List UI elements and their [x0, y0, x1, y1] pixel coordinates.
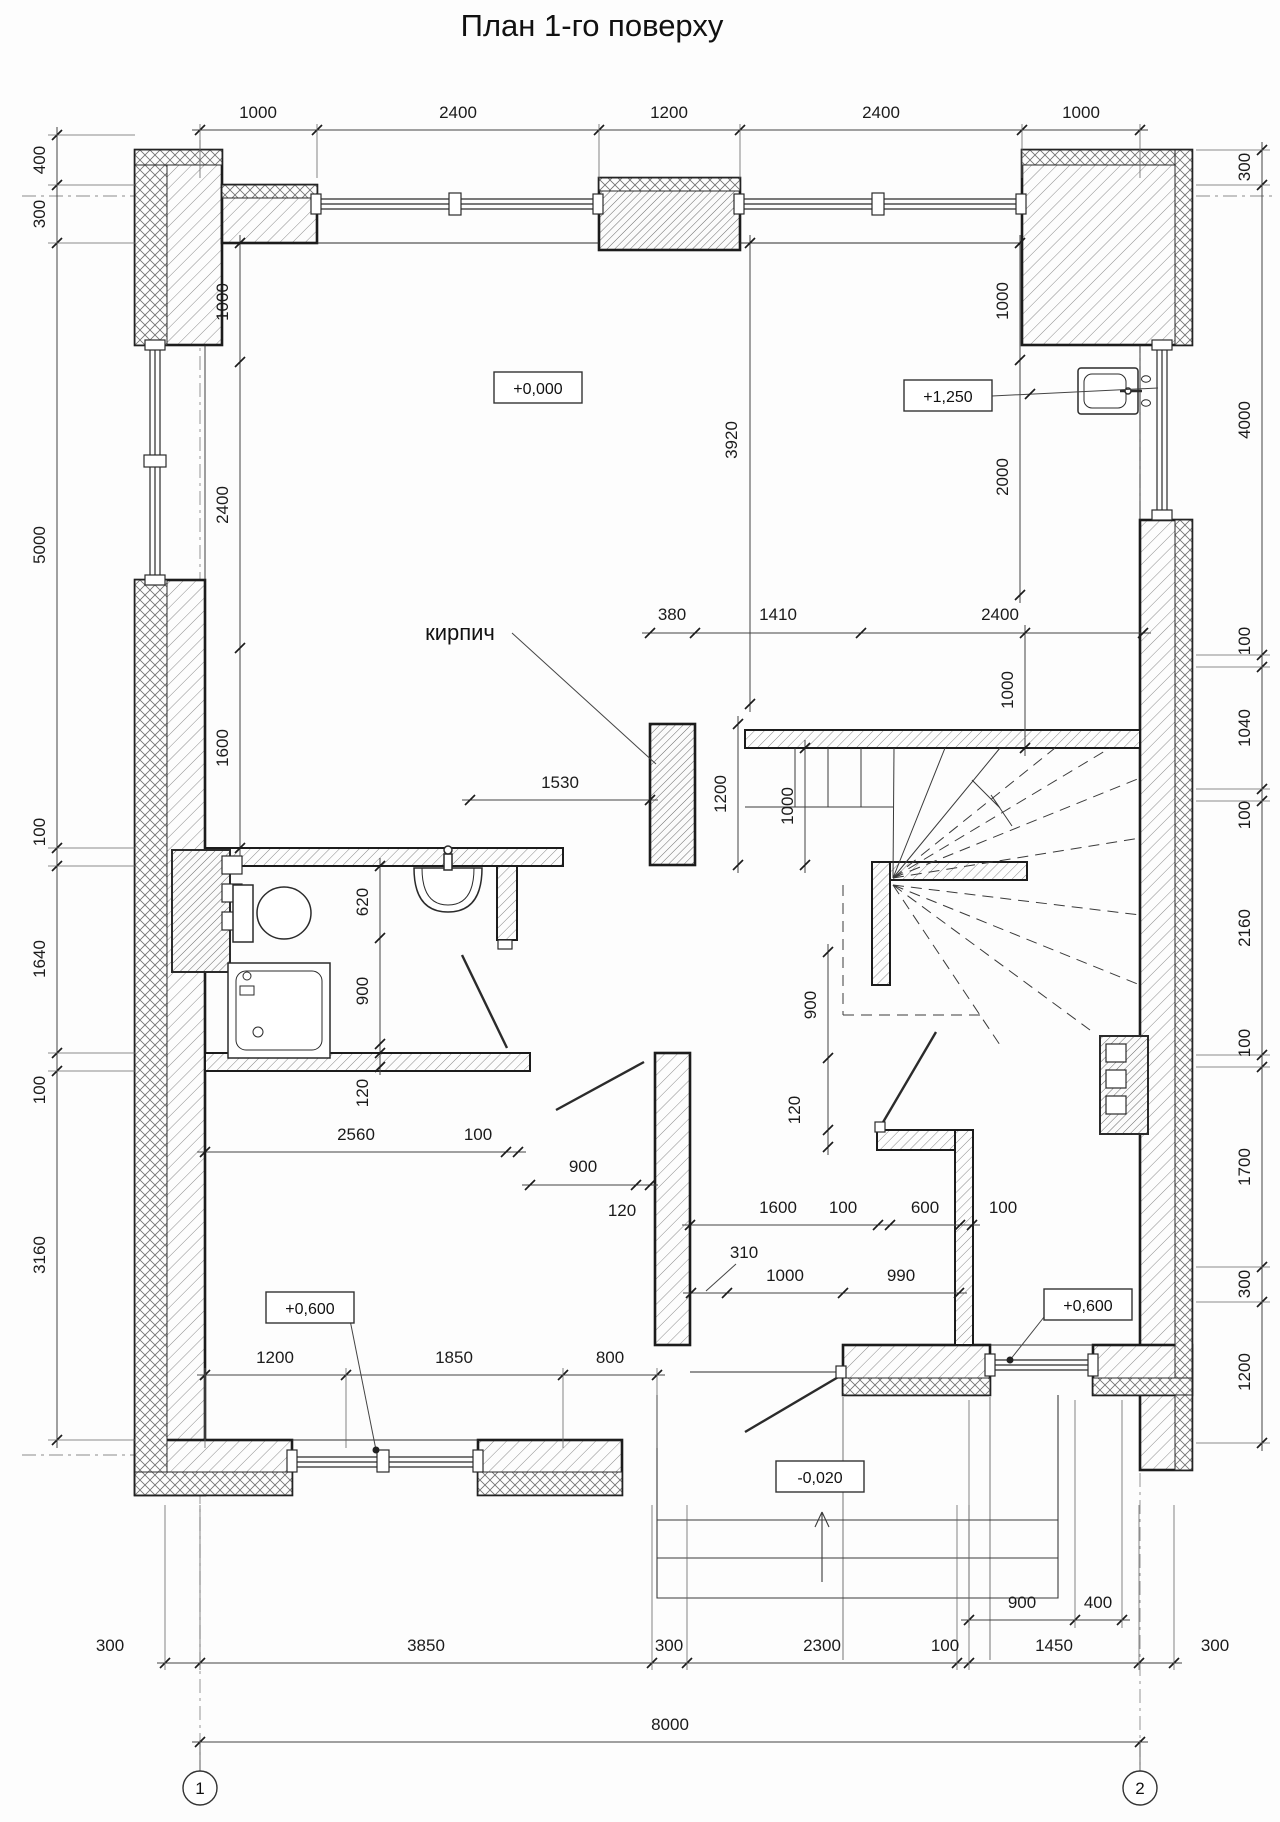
dim-chain-total: 8000 [192, 1715, 1148, 1747]
level-marks-layer: +0,000+1,250+0,600+0,600-0,020 [266, 372, 1132, 1492]
dimension-label: 3160 [30, 1236, 49, 1274]
dimension-label: 1850 [435, 1348, 473, 1367]
brick-callout-label: кирпич [425, 620, 495, 645]
dimension-label: 1200 [256, 1348, 294, 1367]
dimension-label: 2300 [803, 1636, 841, 1655]
leaders-layer [350, 388, 1158, 1454]
stair-landing-wall [745, 730, 1140, 748]
level-mark: -0,020 [776, 1461, 864, 1492]
dimension-label: 400 [30, 146, 49, 174]
dimension-label: 4000 [1235, 401, 1254, 439]
dimension-label: 100 [1235, 627, 1254, 655]
dim-chain-ur: 10002000 [993, 235, 1025, 603]
dimension-label: 990 [887, 1266, 915, 1285]
dimension-label: 2400 [981, 605, 1019, 624]
flue-block-right [1100, 1036, 1148, 1134]
dim-chain-room-bl: 12001850800 [197, 1348, 665, 1448]
dimension-label: 1600 [213, 729, 232, 767]
dimension-label: 3920 [722, 421, 741, 459]
dim-chain-d1530: 1530 [462, 773, 658, 805]
dim-chain-c900d: 900120 [522, 1157, 658, 1220]
dimension-label: 300 [1201, 1636, 1229, 1655]
window-top-1 [311, 193, 603, 215]
dimension-label: 2160 [1235, 909, 1254, 947]
window-bottom-right [985, 1345, 1098, 1376]
wall-bath-east [497, 866, 517, 940]
level-mark: +0,600 [266, 1292, 354, 1323]
level-mark-value: +0,000 [513, 381, 562, 398]
level-mark-value: +0,600 [1063, 1298, 1112, 1315]
dimension-label: 1200 [711, 775, 730, 813]
window-right [1140, 340, 1172, 520]
axis-2: 2 [1123, 1740, 1157, 1805]
door-room-right [882, 1032, 936, 1124]
level-mark: +0,000 [494, 372, 582, 403]
dimension-label: 1700 [1235, 1148, 1254, 1186]
drawing-title: План 1-го поверху [461, 8, 724, 43]
dimension-label: 310 [730, 1243, 758, 1262]
dimension-label: 900 [801, 991, 820, 1019]
dim-chain-d3920: 3920 [722, 235, 755, 712]
dimension-label: 3850 [407, 1636, 445, 1655]
brick-leader [512, 633, 656, 764]
door-room-left [556, 1062, 644, 1110]
dim-chain-top: 10002400120024001000 [192, 103, 1148, 178]
dimension-label: 380 [658, 605, 686, 624]
axis-1: 1 [183, 1740, 217, 1805]
dimension-label: 1000 [766, 1266, 804, 1285]
dimension-label: 100 [931, 1636, 959, 1655]
dimension-label: 1000 [213, 283, 232, 321]
dimension-label: 1000 [998, 671, 1017, 709]
dim-chain-stair-l: 1000 [778, 740, 810, 873]
wall-bath-north [205, 848, 563, 866]
dim-chain-c1000: 3101000990 [683, 1243, 967, 1298]
dim-chain-mid: 38014102400 [642, 605, 1151, 638]
dimension-label: 8000 [651, 1715, 689, 1734]
dimension-label: 1200 [650, 103, 688, 122]
level-mark: +1,250 [904, 380, 992, 411]
axis-bubble-label: 2 [1135, 1779, 1144, 1798]
dimension-label: 100 [989, 1198, 1017, 1217]
dimension-label: 300 [96, 1636, 124, 1655]
level-mark-value: +0,600 [285, 1301, 334, 1318]
dim-chain-left: 400300500010016401003160 [30, 127, 135, 1448]
toilet [233, 885, 311, 942]
window-bottom-left [287, 1440, 483, 1472]
level-0600-left-leader [350, 1320, 380, 1454]
dimension-label: 100 [1235, 801, 1254, 829]
dimension-label: 1450 [1035, 1636, 1073, 1655]
stair-newel-wall-v [872, 862, 890, 985]
level-mark-value: -0,020 [797, 1470, 842, 1487]
dimension-label: 1640 [30, 940, 49, 978]
dimension-label: 120 [353, 1079, 372, 1107]
floor-plan-canvas: План 1-го поверху [0, 0, 1280, 1822]
dimension-label: 100 [1235, 1029, 1254, 1057]
dimension-label: 1600 [759, 1198, 797, 1217]
d310-leader [706, 1264, 736, 1291]
door-bathroom [462, 955, 507, 1048]
dimension-label: 620 [353, 888, 372, 916]
dimension-label: 300 [30, 200, 49, 228]
wall-central [655, 1053, 690, 1345]
dimension-label: 300 [655, 1636, 683, 1655]
axis-bubbles-layer: 12 [183, 1740, 1157, 1805]
level-mark-value: +1,250 [923, 389, 972, 406]
dimension-label: 100 [30, 818, 49, 846]
dim-chain-bottom: 300385030023001001450300 [96, 1505, 1229, 1670]
dimension-label: 900 [1008, 1593, 1036, 1612]
corner-pier-top-right [1022, 150, 1192, 345]
dimension-label: 100 [829, 1198, 857, 1217]
dimension-label: 1000 [778, 787, 797, 825]
dim-chain-c900v: 900120 [785, 944, 833, 1155]
dimension-label: 1530 [541, 773, 579, 792]
dimension-label: 1000 [1062, 103, 1100, 122]
dim-chain-pier-h: 1200 [711, 716, 743, 873]
dimension-label: 100 [464, 1125, 492, 1144]
window-left [144, 340, 205, 585]
dimension-label: 120 [785, 1096, 804, 1124]
brick-pier [650, 724, 695, 865]
dimension-label: 900 [353, 977, 372, 1005]
level-0600-right-leader [1007, 1312, 1049, 1364]
dimension-label: 5000 [30, 526, 49, 564]
dim-chain-bottom-sub: 900400 [961, 1400, 1130, 1628]
dim-chain-c2560: 2560100 [197, 1125, 526, 1157]
dimension-label: 120 [608, 1201, 636, 1220]
dimension-label: 400 [1084, 1593, 1112, 1612]
level-mark: +0,600 [1044, 1289, 1132, 1320]
dimension-label: 600 [911, 1198, 939, 1217]
dimension-label: 2400 [862, 103, 900, 122]
dimension-label: 1000 [239, 103, 277, 122]
dimension-label: 100 [30, 1076, 49, 1104]
dimension-label: 2400 [213, 486, 232, 524]
dimension-label: 1200 [1235, 1353, 1254, 1391]
floor-plan-page: План 1-го поверху [0, 0, 1280, 1822]
dimension-label: 800 [596, 1348, 624, 1367]
dimension-label: 1410 [759, 605, 797, 624]
dimension-label: 2400 [439, 103, 477, 122]
dimension-label: 1040 [1235, 709, 1254, 747]
wall-hall-l-vertical [955, 1130, 973, 1345]
window-top-2 [734, 193, 1026, 215]
dimension-label: 2000 [993, 458, 1012, 496]
flue-block-left [172, 850, 242, 972]
dim-chain-right: 30040001001040100216010017003001200 [1196, 142, 1270, 1451]
dimension-label: 1000 [993, 282, 1012, 320]
shower-tray [228, 963, 330, 1058]
dimension-label: 300 [1235, 153, 1254, 181]
dimension-label: 2560 [337, 1125, 375, 1144]
dimension-label: 300 [1235, 1270, 1254, 1298]
axis-bubble-label: 1 [195, 1779, 204, 1798]
door-entry [745, 1376, 840, 1432]
dimension-label: 900 [569, 1157, 597, 1176]
